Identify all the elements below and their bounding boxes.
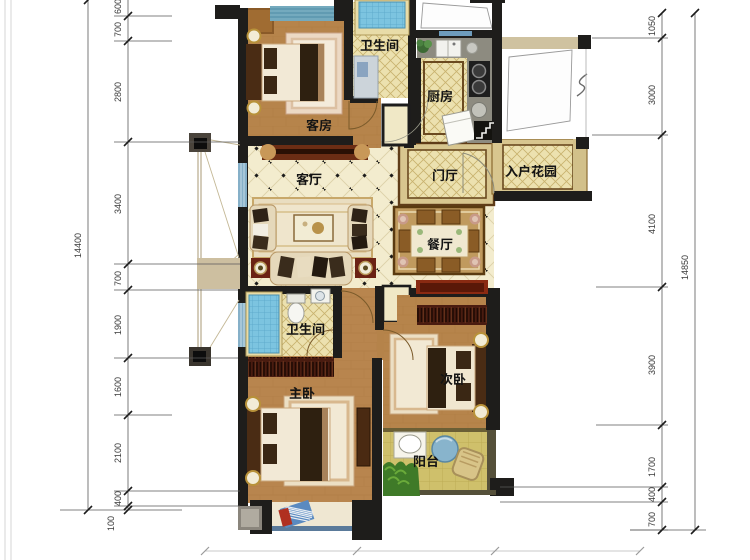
svg-text:1050: 1050	[647, 16, 657, 36]
svg-text:400: 400	[113, 491, 123, 506]
svg-text:2800: 2800	[113, 82, 123, 102]
svg-text:400: 400	[647, 487, 657, 502]
svg-text:3900: 3900	[647, 355, 657, 375]
svg-text:1900: 1900	[113, 315, 123, 335]
svg-text:100: 100	[106, 516, 116, 531]
svg-text:700: 700	[113, 271, 123, 286]
svg-text:700: 700	[647, 512, 657, 527]
svg-text:14400: 14400	[73, 233, 83, 258]
svg-text:700: 700	[113, 22, 123, 37]
svg-text:14850: 14850	[680, 255, 690, 280]
svg-text:4100: 4100	[647, 214, 657, 234]
svg-text:1600: 1600	[113, 377, 123, 397]
svg-text:2100: 2100	[113, 443, 123, 463]
svg-text:600: 600	[113, 0, 123, 14]
svg-text:3400: 3400	[113, 194, 123, 214]
svg-text:1700: 1700	[647, 457, 657, 477]
svg-text:3000: 3000	[647, 85, 657, 105]
